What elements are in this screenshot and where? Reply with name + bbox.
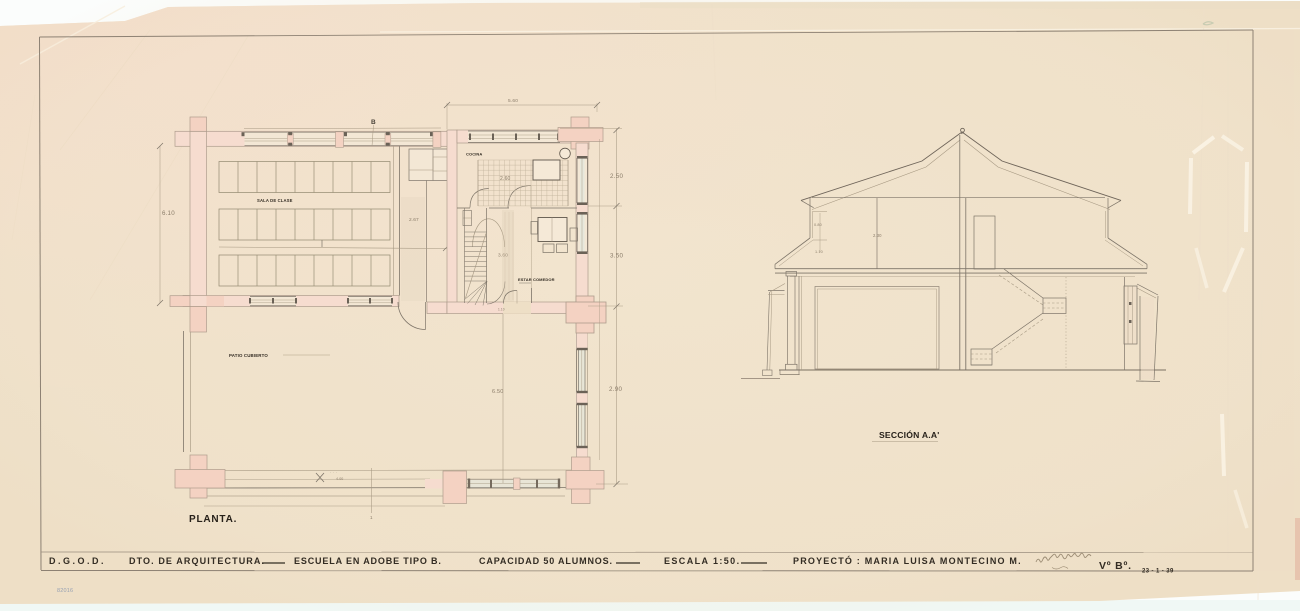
svg-text:1.10: 1.10 [815, 250, 823, 254]
svg-text:CAPACIDAD 50 ALUMNOS.: CAPACIDAD 50 ALUMNOS. [479, 556, 613, 566]
svg-text:2.50: 2.50 [610, 173, 624, 180]
svg-text:4.00: 4.00 [336, 477, 343, 481]
svg-text:2.67: 2.67 [409, 217, 419, 223]
svg-text:PROYECTÓ : MARIA LUISA MONTE: PROYECTÓ : MARIA LUISA MONTECINO M. [793, 555, 1022, 566]
svg-text:SECCIÓN A.A': SECCIÓN A.A' [879, 429, 939, 440]
svg-text:Vº Bº.: Vº Bº. [1099, 560, 1132, 572]
svg-text:PLANTA.: PLANTA. [189, 514, 237, 525]
svg-text:23 - 1 - 39: 23 - 1 - 39 [1142, 569, 1174, 575]
svg-text:6.50: 6.50 [492, 389, 504, 395]
svg-text:2.30: 2.30 [873, 233, 882, 238]
svg-text:SALA DE CLASE: SALA DE CLASE [257, 198, 293, 203]
svg-text:2.60: 2.60 [500, 176, 511, 182]
svg-text:1.10: 1.10 [498, 308, 505, 312]
svg-text:ESTAR COMEDOR: ESTAR COMEDOR [518, 277, 555, 282]
svg-text:6.10: 6.10 [162, 210, 175, 217]
svg-text:0.80: 0.80 [814, 223, 822, 227]
svg-text:. . .: . . . [330, 470, 338, 474]
svg-text:ESCALA 1:50.: ESCALA 1:50. [664, 556, 740, 566]
svg-text:2.90: 2.90 [609, 386, 623, 393]
svg-text:COCINA: COCINA [466, 152, 482, 157]
svg-text:5.60: 5.60 [508, 98, 518, 104]
svg-text:DTO. DE ARQUITECTURA.: DTO. DE ARQUITECTURA. [129, 556, 265, 566]
svg-text:82016: 82016 [57, 588, 73, 594]
svg-text:B: B [371, 119, 376, 126]
svg-text:3.50: 3.50 [610, 253, 624, 260]
svg-text:D.G.O.D.: D.G.O.D. [49, 556, 106, 566]
svg-text:PATIO CUBIERTO: PATIO CUBIERTO [229, 353, 268, 358]
svg-text:ESCUELA EN ADOBE TIPO B.: ESCUELA EN ADOBE TIPO B. [294, 556, 442, 566]
